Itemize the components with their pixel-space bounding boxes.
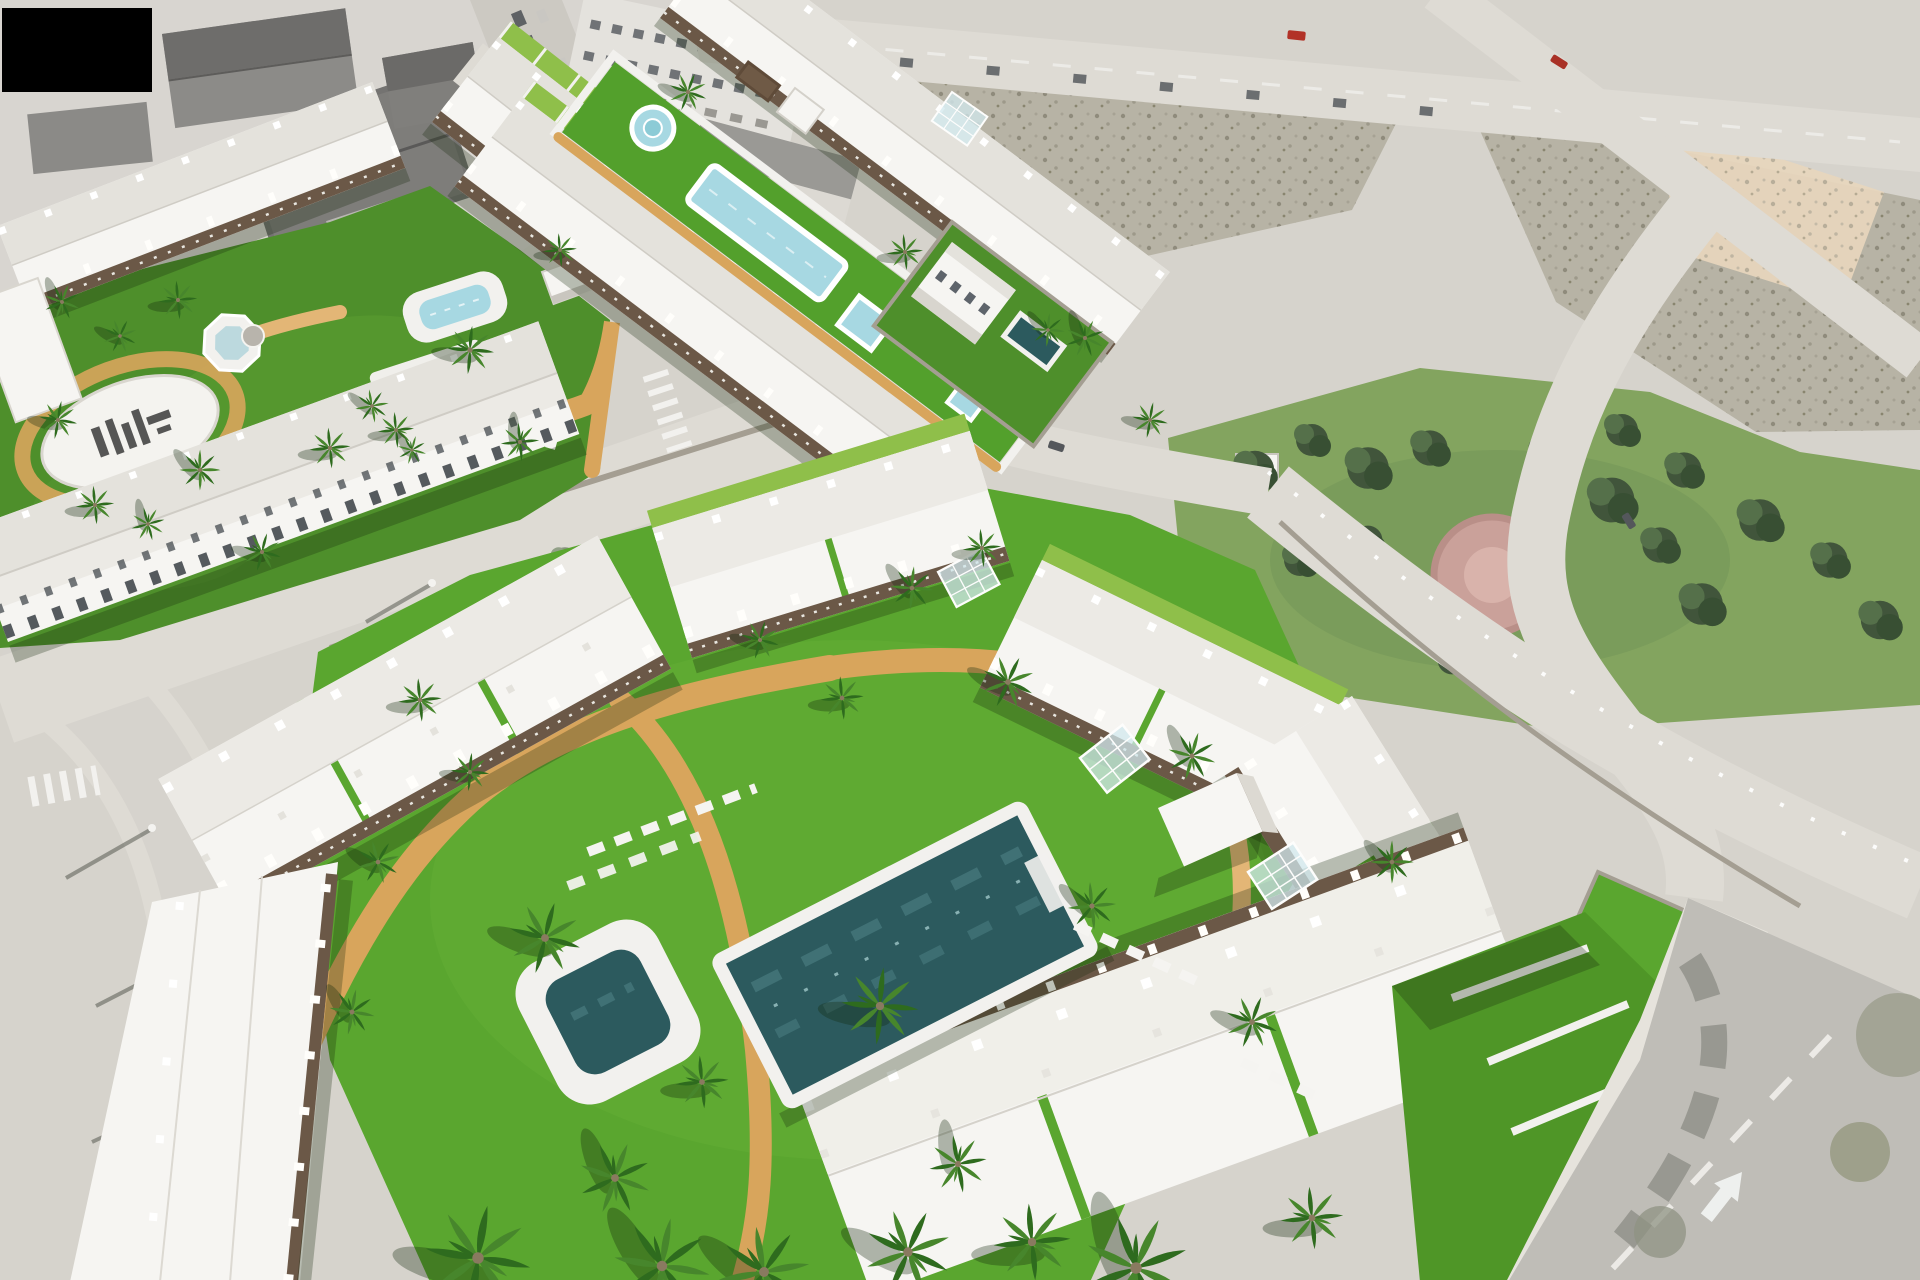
parasol: [242, 325, 264, 347]
red-car: [1287, 30, 1306, 41]
overhanging-tree: [1830, 1122, 1890, 1182]
overhanging-tree: [1634, 1206, 1686, 1258]
aerial-render: [0, 0, 1920, 1280]
